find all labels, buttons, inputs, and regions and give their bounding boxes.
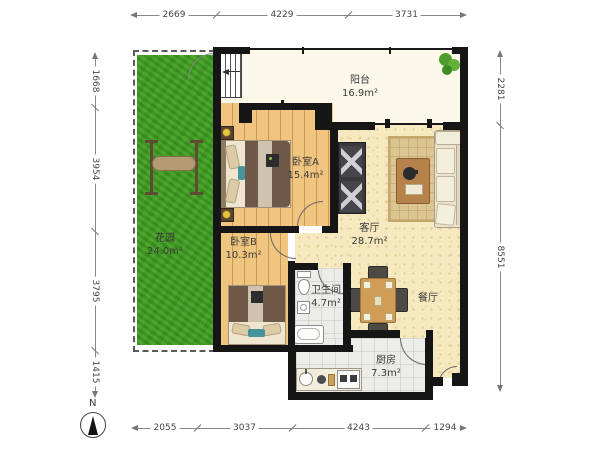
bed-b-quilt bbox=[251, 291, 263, 303]
room-name: 卧室A bbox=[278, 156, 333, 169]
sink-icon bbox=[299, 372, 313, 386]
wall-bedroom-b-right bbox=[288, 261, 295, 348]
dim-value: 8551 bbox=[495, 242, 505, 271]
dim-value: 2281 bbox=[495, 75, 505, 104]
window-marker bbox=[281, 100, 284, 103]
dim-bottom-2: 3037 bbox=[197, 428, 292, 429]
plate bbox=[385, 281, 393, 289]
dim-left-4: 1415 bbox=[95, 350, 96, 394]
stove-burner bbox=[340, 375, 347, 382]
wall-corner bbox=[315, 103, 332, 123]
room-label-dining: 餐厅 bbox=[404, 292, 452, 305]
wall-bedroom-a-bottom bbox=[213, 226, 299, 233]
dim-value: 1668 bbox=[90, 67, 100, 96]
room-name: 花园 bbox=[140, 232, 190, 245]
dim-arrow bbox=[131, 425, 138, 431]
wall-right bbox=[460, 47, 468, 385]
dim-value: 3037 bbox=[230, 423, 259, 433]
plant-icon bbox=[442, 65, 452, 75]
wall-balcony-bottom bbox=[315, 122, 375, 130]
sofa-cushion bbox=[436, 148, 455, 174]
room-area: 24.0m² bbox=[140, 245, 190, 258]
plate bbox=[363, 281, 371, 289]
room-name: 卫生间 bbox=[300, 284, 352, 297]
garden-bench-post-right bbox=[195, 141, 198, 195]
wall-left bbox=[213, 47, 221, 352]
dim-arrow bbox=[497, 50, 503, 57]
decor-pillow bbox=[238, 166, 245, 180]
bed-a-runner bbox=[258, 141, 272, 207]
stove-burner bbox=[350, 375, 357, 382]
wall-balcony-bottom bbox=[443, 122, 460, 130]
dim-left-3: 3795 bbox=[95, 231, 96, 350]
wall-entry-left bbox=[433, 377, 443, 386]
wall-kitchen-top bbox=[343, 330, 400, 338]
dim-right-1: 2281 bbox=[500, 53, 501, 125]
plate bbox=[363, 313, 371, 321]
dim-top-3: 3731 bbox=[348, 15, 465, 16]
sofa-armrest bbox=[435, 131, 462, 145]
coffee-table bbox=[396, 158, 430, 204]
dim-value: 4229 bbox=[268, 10, 297, 20]
wall-bottom-mid bbox=[213, 345, 353, 352]
dim-value: 3795 bbox=[90, 276, 100, 305]
dim-value: 2055 bbox=[151, 423, 180, 433]
room-name: 餐厅 bbox=[404, 292, 452, 305]
room-area: 28.7m² bbox=[342, 235, 397, 248]
table-centerpiece bbox=[374, 296, 382, 306]
dim-value: 3954 bbox=[90, 155, 100, 184]
speaker-x-icon bbox=[341, 181, 362, 212]
lamp-icon bbox=[222, 210, 231, 219]
garden-bench-cap bbox=[190, 192, 203, 195]
cutting-board bbox=[328, 374, 335, 386]
dim-arrow bbox=[460, 425, 467, 431]
stairs-arrow-icon bbox=[222, 69, 229, 75]
room-name: 卧室B bbox=[216, 236, 271, 249]
room-name: 客厅 bbox=[342, 222, 397, 235]
dim-top-1: 2669 bbox=[132, 15, 216, 16]
room-label-garden: 花园 24.0m² bbox=[140, 232, 190, 258]
sofa-cushion bbox=[435, 203, 456, 226]
room-label-bedroom-b: 卧室B 10.3m² bbox=[216, 236, 271, 262]
wall-corner bbox=[239, 103, 252, 123]
compass-needle-icon bbox=[88, 416, 98, 435]
faucet-icon bbox=[305, 369, 307, 374]
tray bbox=[405, 184, 423, 195]
room-label-bathroom: 卫生间 4.7m² bbox=[300, 284, 352, 310]
wall-stub bbox=[322, 226, 338, 233]
dim-arrow bbox=[497, 385, 503, 392]
wall-bathroom-top bbox=[295, 263, 318, 270]
burner-knob bbox=[317, 375, 326, 384]
railing-post bbox=[302, 47, 304, 54]
garden-bench-cap bbox=[190, 140, 203, 143]
dim-value: 1415 bbox=[90, 358, 100, 387]
garden-bench-cap bbox=[145, 140, 158, 143]
room-area: 10.3m² bbox=[216, 249, 271, 262]
dim-arrow bbox=[92, 52, 98, 59]
room-area: 7.3m² bbox=[362, 367, 410, 380]
room-label-kitchen: 厨房 7.3m² bbox=[362, 354, 410, 380]
garden-grass bbox=[137, 55, 213, 345]
balcony-railing bbox=[242, 48, 452, 50]
dim-arrow bbox=[460, 12, 467, 18]
toilet-tank bbox=[297, 271, 311, 278]
room-label-living: 客厅 28.7m² bbox=[342, 222, 397, 248]
floorplan: 阳台 16.9m² 卧室A 15.4m² 客厅 28.7m² 花园 24.0m²… bbox=[0, 0, 600, 450]
sliding-door-stop bbox=[427, 119, 432, 128]
wall-kitchen-hinge bbox=[426, 330, 433, 338]
dim-arrow bbox=[92, 391, 98, 398]
sofa-cushion bbox=[436, 176, 455, 202]
dim-value: 1294 bbox=[431, 423, 460, 433]
plate bbox=[385, 313, 393, 321]
dim-bottom-3: 4243 bbox=[292, 428, 425, 429]
wall-entry-corner bbox=[452, 373, 468, 386]
compass-north-label: N bbox=[89, 398, 96, 409]
room-label-balcony: 阳台 16.9m² bbox=[330, 74, 390, 100]
wall-top-left bbox=[213, 47, 250, 54]
dim-arrow bbox=[130, 12, 137, 18]
railing-post bbox=[389, 47, 391, 54]
room-area: 4.7m² bbox=[300, 297, 352, 310]
decor-pillow bbox=[248, 329, 265, 337]
speaker-x-icon bbox=[341, 146, 362, 177]
dim-value: 2669 bbox=[160, 10, 189, 20]
dim-left-2: 3954 bbox=[95, 107, 96, 231]
dim-top-2: 4229 bbox=[216, 15, 348, 16]
dim-value: 4243 bbox=[344, 423, 373, 433]
wall-kitchen-right bbox=[425, 338, 433, 394]
garden-bench-top bbox=[152, 156, 196, 171]
garden-bench-cap bbox=[145, 192, 158, 195]
bathtub-inner bbox=[297, 328, 320, 340]
dim-bottom-4: 1294 bbox=[425, 428, 465, 429]
room-name: 阳台 bbox=[330, 74, 390, 87]
dim-value: 3731 bbox=[392, 10, 421, 20]
dim-right-2: 8551 bbox=[500, 125, 501, 388]
dim-bottom-1: 2055 bbox=[133, 428, 197, 429]
quilt-dot bbox=[269, 157, 272, 160]
room-name: 厨房 bbox=[362, 354, 410, 367]
room-area: 15.4m² bbox=[278, 169, 333, 182]
sliding-door-stop bbox=[385, 119, 390, 128]
room-area: 16.9m² bbox=[330, 87, 390, 100]
lamp-icon bbox=[222, 128, 231, 137]
room-label-bedroom-a: 卧室A 15.4m² bbox=[278, 156, 333, 182]
kettle-spout bbox=[414, 170, 418, 174]
dim-left-1: 1668 bbox=[95, 55, 96, 107]
wall-kitchen-bottom bbox=[288, 392, 433, 400]
